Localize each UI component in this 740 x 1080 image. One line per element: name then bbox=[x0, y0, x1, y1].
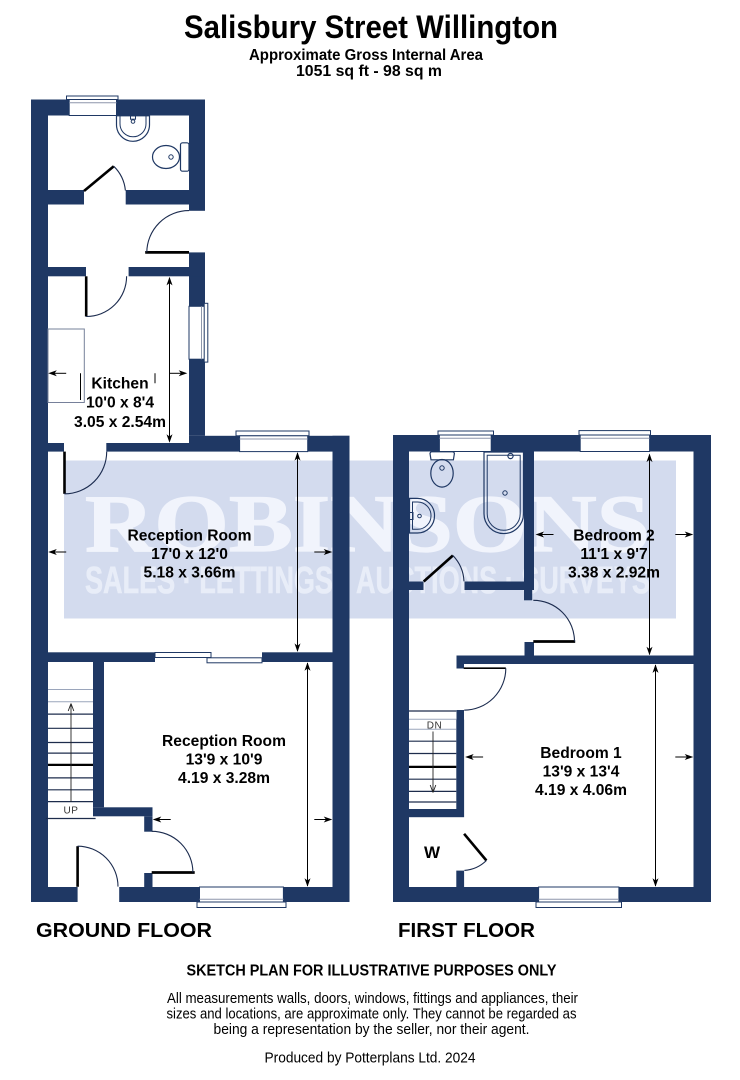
svg-text:Reception Room: Reception Room bbox=[128, 527, 252, 544]
svg-text:10'0 x 8'4: 10'0 x 8'4 bbox=[86, 395, 154, 412]
svg-text:All measurements walls, doors,: All measurements walls, doors, windows, … bbox=[167, 991, 578, 1007]
svg-text:3.05 x 2.54m: 3.05 x 2.54m bbox=[74, 414, 166, 431]
svg-text:SKETCH PLAN FOR ILLUSTRATIVE P: SKETCH PLAN FOR ILLUSTRATIVE PURPOSES ON… bbox=[187, 963, 557, 980]
svg-text:1051 sq ft - 98 sq m: 1051 sq ft - 98 sq m bbox=[296, 63, 442, 80]
svg-text:GROUND FLOOR: GROUND FLOOR bbox=[36, 920, 213, 942]
svg-text:UP: UP bbox=[64, 806, 79, 817]
svg-text:4.19 x 4.06m: 4.19 x 4.06m bbox=[535, 782, 627, 799]
svg-text:Reception Room: Reception Room bbox=[162, 733, 286, 750]
svg-text:13'9 x 13'4: 13'9 x 13'4 bbox=[543, 763, 620, 780]
svg-text:13'9 x 10'9: 13'9 x 10'9 bbox=[186, 751, 263, 768]
svg-text:3.38 x 2.92m: 3.38 x 2.92m bbox=[568, 565, 660, 582]
svg-text:17'0 x 12'0: 17'0 x 12'0 bbox=[151, 546, 228, 563]
svg-text:FIRST FLOOR: FIRST FLOOR bbox=[398, 920, 536, 942]
svg-text:sizes and locations, are appro: sizes and locations, are approximate onl… bbox=[167, 1007, 577, 1023]
svg-text:Bedroom 2: Bedroom 2 bbox=[573, 527, 655, 544]
svg-text:5.18 x 3.66m: 5.18 x 3.66m bbox=[144, 565, 236, 582]
svg-text:being a representation by the: being a representation by the seller, no… bbox=[214, 1022, 530, 1038]
svg-text:11'1 x 9'7: 11'1 x 9'7 bbox=[580, 546, 647, 563]
svg-text:Salisbury Street Willington: Salisbury Street Willington bbox=[184, 9, 558, 45]
svg-text:DN: DN bbox=[427, 721, 442, 732]
svg-text:Kitchen: Kitchen bbox=[91, 375, 148, 392]
svg-text:4.19 x 3.28m: 4.19 x 3.28m bbox=[178, 770, 270, 787]
svg-text:W: W bbox=[424, 843, 441, 862]
svg-text:Bedroom 1: Bedroom 1 bbox=[540, 745, 622, 762]
svg-text:Produced by Potterplans Ltd. 2: Produced by Potterplans Ltd. 2024 bbox=[265, 1050, 476, 1067]
svg-text:Approximate Gross Internal Are: Approximate Gross Internal Area bbox=[249, 47, 483, 64]
